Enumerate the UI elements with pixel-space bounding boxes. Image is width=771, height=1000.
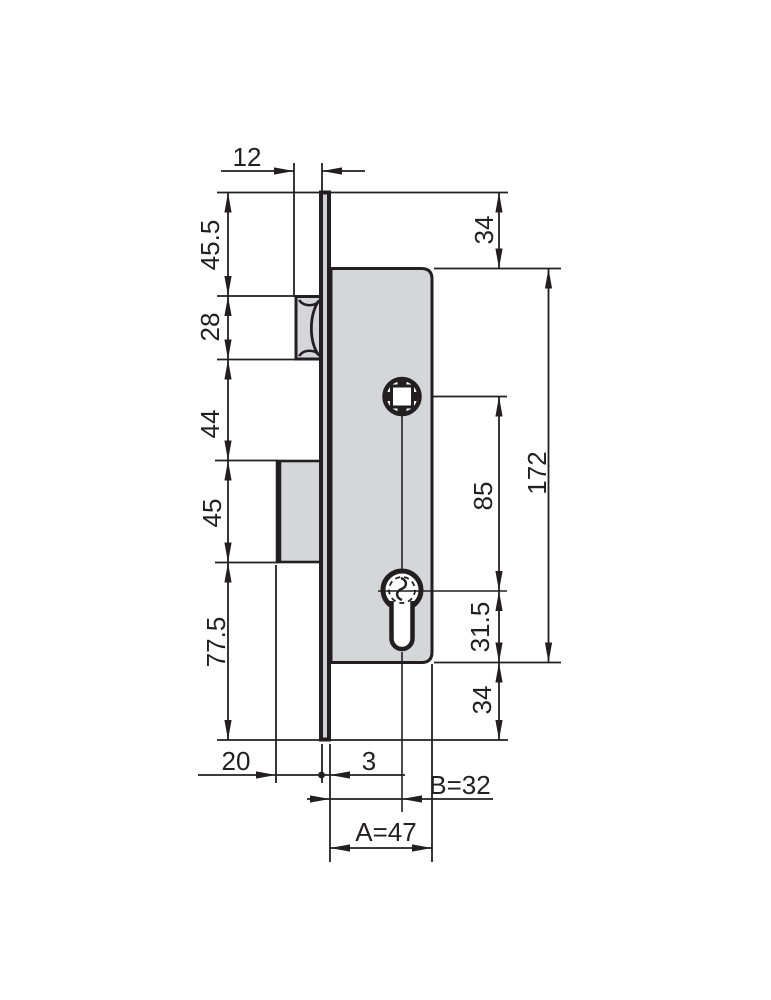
dim-label-bolt-projection: 20 (222, 746, 251, 776)
dim-label-faceplate-thickness: 3 (362, 746, 376, 776)
dim-label-case-depth: A=47 (355, 817, 416, 847)
square-spindle-hole (392, 386, 413, 407)
drawing-canvas: 12 45.5 28 44 45 77.5 34 85 31.5 34 172 … (0, 0, 771, 1000)
chain-dot-terminator (318, 772, 325, 779)
dim-label-cylinder-to-case-bottom: 31.5 (465, 602, 495, 653)
deadbolt (278, 461, 322, 562)
dim-label-bolt-height: 45 (197, 499, 227, 528)
dim-label-bolt-to-bottom: 77.5 (201, 617, 231, 668)
dim-label-top-to-case: 34 (469, 216, 499, 245)
dim-label-case-bottom-to-end: 34 (467, 686, 497, 715)
dim-label-backset: B=32 (429, 770, 490, 800)
dim-label-spindle-to-cylinder: 85 (468, 482, 498, 511)
dim-label-case-height: 172 (522, 451, 552, 494)
dim-label-roller-height: 28 (195, 313, 225, 342)
dim-label-top-to-roller: 45.5 (195, 220, 225, 271)
spindle-follower (384, 379, 420, 414)
lock-dimension-drawing: 12 45.5 28 44 45 77.5 34 85 31.5 34 172 … (0, 0, 771, 1000)
dim-label-roller-projection: 12 (233, 142, 262, 172)
faceplate (321, 193, 329, 740)
dim-label-roller-to-bolt: 44 (195, 410, 225, 439)
